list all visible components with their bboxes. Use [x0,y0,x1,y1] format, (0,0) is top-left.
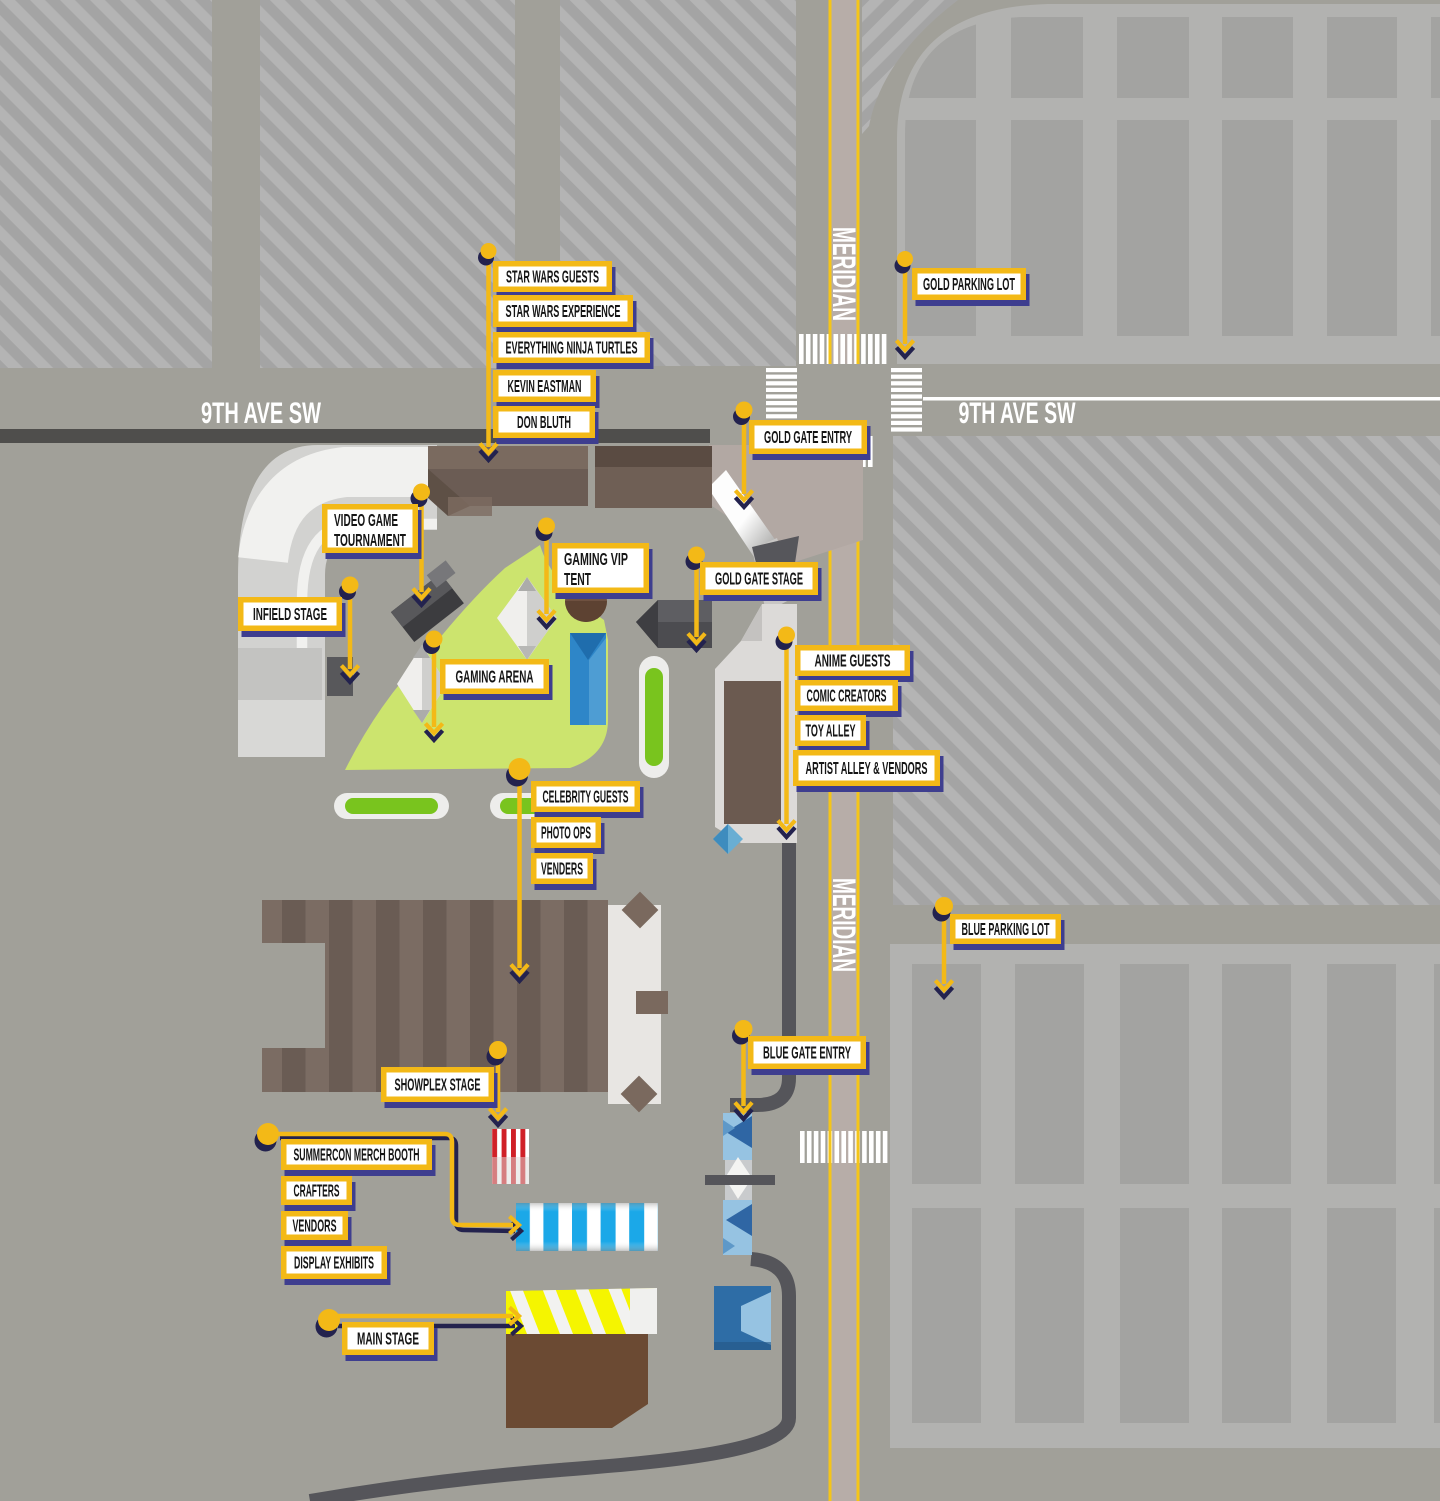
svg-text:DISPLAY EXHIBITS: DISPLAY EXHIBITS [294,1253,374,1273]
svg-text:VENDERS: VENDERS [541,859,583,879]
svg-text:TENT: TENT [564,569,591,589]
svg-text:COMIC CREATORS: COMIC CREATORS [807,686,887,706]
svg-text:GAMING VIP: GAMING VIP [564,549,628,569]
svg-text:MAIN STAGE: MAIN STAGE [357,1329,419,1349]
svg-text:KEVIN EASTMAN: KEVIN EASTMAN [508,376,582,396]
svg-text:VENDORS: VENDORS [293,1216,337,1236]
svg-text:9TH AVE SW: 9TH AVE SW [959,397,1076,430]
svg-text:GOLD PARKING LOT: GOLD PARKING LOT [923,274,1015,294]
svg-text:GOLD GATE STAGE: GOLD GATE STAGE [715,569,803,589]
svg-text:CRAFTERS: CRAFTERS [294,1181,340,1201]
svg-text:DON BLUTH: DON BLUTH [517,412,571,432]
svg-text:STAR WARS GUESTS: STAR WARS GUESTS [506,267,599,287]
svg-text:TOY ALLEY: TOY ALLEY [806,721,856,741]
svg-text:STAR WARS EXPERIENCE: STAR WARS EXPERIENCE [506,301,621,321]
svg-text:PHOTO OPS: PHOTO OPS [541,823,591,843]
svg-text:GOLD GATE ENTRY: GOLD GATE ENTRY [764,427,852,447]
svg-text:INFIELD STAGE: INFIELD STAGE [253,604,327,624]
svg-text:EVERYTHING NINJA TURTLES: EVERYTHING NINJA TURTLES [506,338,638,358]
svg-text:GAMING ARENA: GAMING ARENA [456,667,534,687]
svg-text:SHOWPLEX STAGE: SHOWPLEX STAGE [395,1075,481,1095]
svg-text:SUMMERCON MERCH BOOTH: SUMMERCON MERCH BOOTH [294,1145,420,1165]
svg-text:TOURNAMENT: TOURNAMENT [334,530,406,550]
svg-text:MERIDIAN: MERIDIAN [826,878,862,972]
svg-text:ARTIST ALLEY & VENDORS: ARTIST ALLEY & VENDORS [806,758,928,778]
svg-text:BLUE GATE ENTRY: BLUE GATE ENTRY [763,1043,851,1063]
svg-text:BLUE PARKING LOT: BLUE PARKING LOT [962,919,1050,939]
svg-text:CELEBRITY GUESTS: CELEBRITY GUESTS [543,787,629,807]
svg-text:MERIDIAN: MERIDIAN [826,227,862,321]
svg-text:9TH AVE SW: 9TH AVE SW [201,397,321,430]
svg-text:ANIME GUESTS: ANIME GUESTS [815,651,891,671]
svg-text:VIDEO GAME: VIDEO GAME [334,510,398,530]
